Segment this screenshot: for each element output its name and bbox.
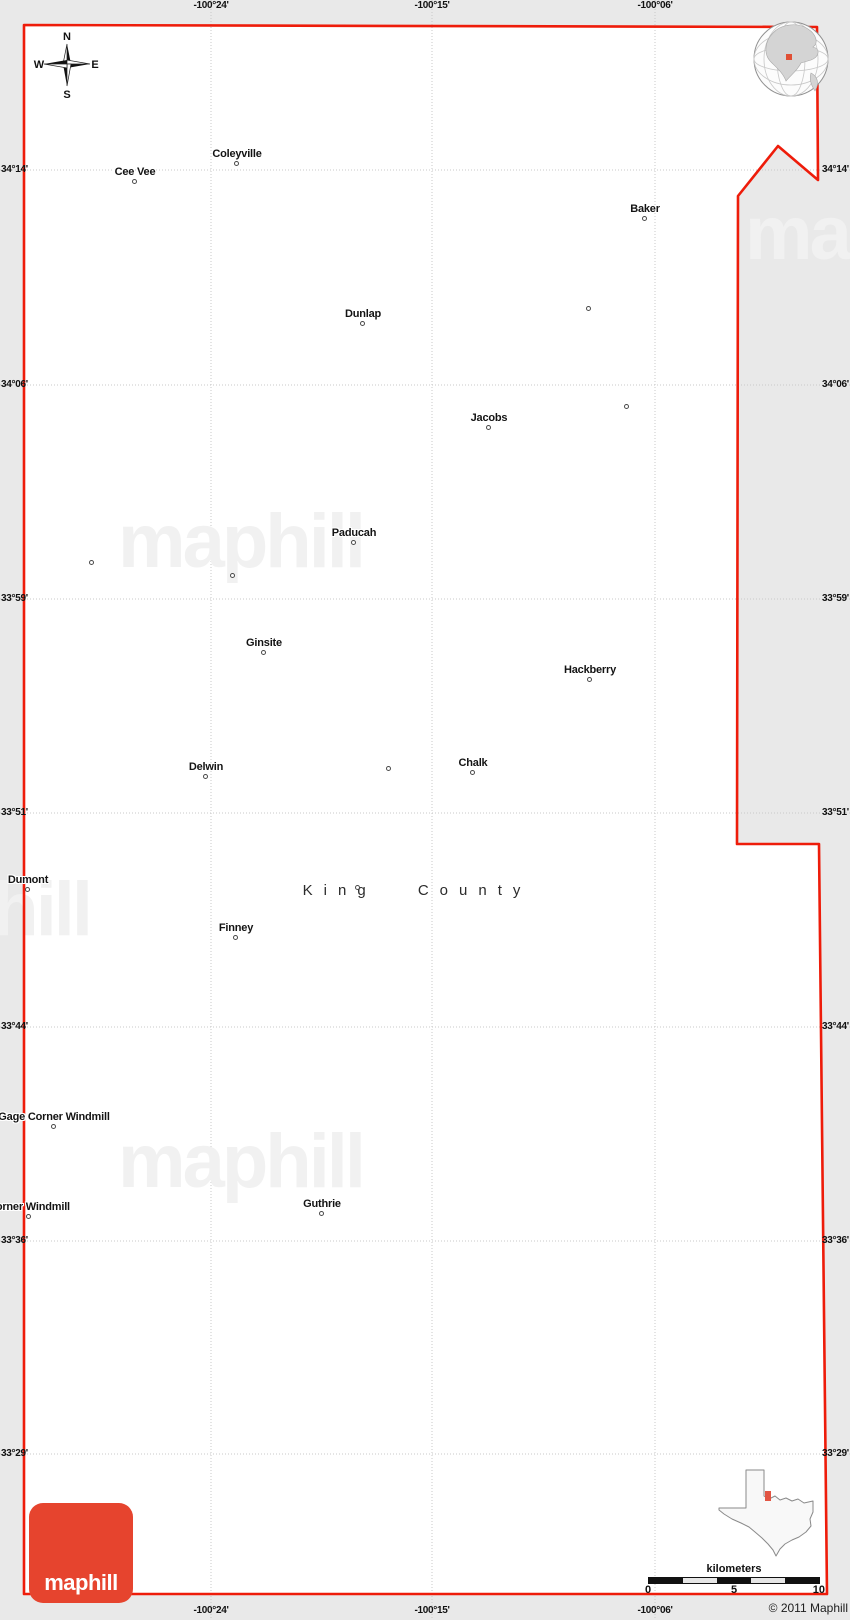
town-label[interactable]: Guthrie bbox=[303, 1198, 341, 1210]
parallel-label-right: 33°36' bbox=[822, 1235, 849, 1246]
parallel-label-left: 34°14' bbox=[1, 164, 27, 175]
compass-rose-icon: N W E S bbox=[30, 26, 104, 104]
texas-inset-map bbox=[716, 1468, 820, 1560]
town-label[interactable]: Chalk bbox=[459, 757, 488, 769]
town-label[interactable]: Ginsite bbox=[246, 637, 282, 649]
place-dot bbox=[89, 560, 94, 565]
meridian-label-top: -100°06' bbox=[637, 0, 672, 11]
scale-tick: 5 bbox=[731, 1584, 737, 1596]
town-label[interactable]: Finney bbox=[219, 922, 253, 934]
county-border bbox=[24, 25, 827, 1594]
parallel-label-left: 33°36' bbox=[1, 1235, 27, 1246]
parallel-label-left: 33°44' bbox=[1, 1021, 27, 1032]
meridian-label-top: -100°24' bbox=[193, 0, 228, 11]
place-dot bbox=[355, 885, 360, 890]
place-dot bbox=[230, 573, 235, 578]
town-label[interactable]: Gage Corner Windmill bbox=[0, 1111, 110, 1123]
maphill-logo-text: maphill bbox=[44, 1570, 118, 1603]
town-dot bbox=[587, 677, 592, 682]
meridian-label-top: -100°15' bbox=[414, 0, 449, 11]
scale-bar: kilometers 0510 bbox=[648, 1563, 820, 1596]
scale-tick: 0 bbox=[645, 1584, 651, 1596]
county-location-marker bbox=[765, 1491, 771, 1501]
parallel-label-right: 33°44' bbox=[822, 1021, 849, 1032]
town-dot bbox=[470, 770, 475, 775]
town-dot bbox=[319, 1211, 324, 1216]
parallel-label-right: 33°59' bbox=[822, 593, 849, 604]
parallel-label-left: 33°51' bbox=[1, 807, 27, 818]
town-dot bbox=[360, 321, 365, 326]
town-dot bbox=[26, 1214, 31, 1219]
town-label[interactable]: Dunlap bbox=[345, 308, 381, 320]
meridian-label-bottom: -100°06' bbox=[637, 1605, 672, 1616]
map-canvas[interactable]: maphill maphill maphill maphill King Cou… bbox=[0, 0, 850, 1620]
parallel-label-right: 34°14' bbox=[822, 164, 849, 175]
scalebar-segment bbox=[785, 1578, 819, 1583]
scale-tick: 10 bbox=[813, 1584, 825, 1596]
place-dot bbox=[586, 306, 591, 311]
town-label[interactable]: Jacobs bbox=[471, 412, 508, 424]
county-border-layer bbox=[0, 0, 850, 1620]
town-dot bbox=[51, 1124, 56, 1129]
maphill-watermark: maphill bbox=[118, 1118, 363, 1205]
globe-locator-icon bbox=[753, 21, 829, 97]
town-label[interactable]: Cee Vee bbox=[115, 166, 156, 178]
texas-outline bbox=[719, 1470, 813, 1556]
scalebar-segment bbox=[717, 1578, 751, 1583]
compass-n-label: N bbox=[63, 31, 71, 43]
scale-units-label: kilometers bbox=[648, 1563, 820, 1575]
globe-location-marker bbox=[786, 54, 792, 60]
parallel-label-left: 33°59' bbox=[1, 593, 27, 604]
parallel-label-right: 33°51' bbox=[822, 807, 849, 818]
town-dot bbox=[261, 650, 266, 655]
place-dot bbox=[386, 766, 391, 771]
compass-w-label: W bbox=[34, 59, 45, 71]
town-dot bbox=[25, 887, 30, 892]
compass-s-label: S bbox=[63, 89, 70, 101]
scalebar-segment bbox=[751, 1578, 785, 1583]
town-label[interactable]: Dumont bbox=[8, 874, 48, 886]
map-margin bbox=[0, 0, 850, 1620]
town-dot bbox=[234, 161, 239, 166]
parallel-label-right: 33°29' bbox=[822, 1448, 849, 1459]
town-dot bbox=[351, 540, 356, 545]
town-dot bbox=[486, 425, 491, 430]
graticule-grid bbox=[0, 0, 850, 1620]
town-label[interactable]: Paducah bbox=[332, 527, 376, 539]
scale-tick-labels: 0510 bbox=[648, 1584, 820, 1596]
town-label[interactable]: Corner Windmill bbox=[0, 1201, 70, 1213]
parallel-label-left: 34°06' bbox=[1, 379, 27, 390]
town-label[interactable]: Delwin bbox=[189, 761, 223, 773]
town-dot bbox=[203, 774, 208, 779]
scalebar-segment bbox=[683, 1578, 717, 1583]
parallel-label-right: 34°06' bbox=[822, 379, 849, 390]
county-title: King County bbox=[303, 882, 532, 899]
maphill-watermark: maphill bbox=[745, 190, 850, 277]
compass-e-label: E bbox=[91, 59, 98, 71]
place-dot bbox=[624, 404, 629, 409]
meridian-label-bottom: -100°15' bbox=[414, 1605, 449, 1616]
town-dot bbox=[132, 179, 137, 184]
maphill-watermark: maphill bbox=[118, 498, 363, 585]
meridian-label-bottom: -100°24' bbox=[193, 1605, 228, 1616]
county-area bbox=[24, 25, 827, 1594]
scale-bar-segments bbox=[648, 1577, 820, 1584]
town-label[interactable]: Baker bbox=[630, 203, 660, 215]
maphill-logo[interactable]: maphill bbox=[29, 1503, 133, 1603]
town-label[interactable]: Coleyville bbox=[212, 148, 261, 160]
town-label[interactable]: Hackberry bbox=[564, 664, 616, 676]
town-dot bbox=[642, 216, 647, 221]
scalebar-segment bbox=[649, 1578, 683, 1583]
parallel-label-left: 33°29' bbox=[1, 1448, 27, 1459]
town-dot bbox=[233, 935, 238, 940]
map-base-layer bbox=[0, 0, 850, 1620]
copyright-notice[interactable]: © 2011 Maphill bbox=[700, 1601, 848, 1615]
